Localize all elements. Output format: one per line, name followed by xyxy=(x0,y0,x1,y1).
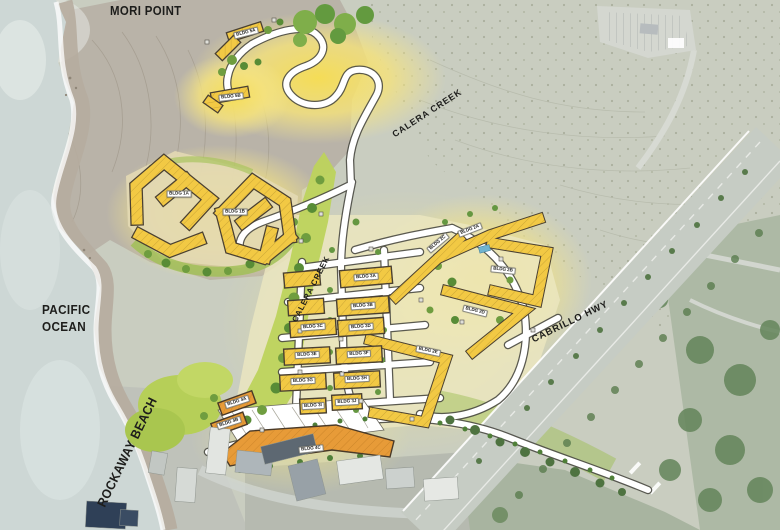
site-plan-canvas xyxy=(0,0,780,530)
bldg-label-3i: BLDG 3I xyxy=(301,402,324,410)
label-ocean: OCEAN xyxy=(42,318,90,335)
bldg-label-3h: BLDG 3H xyxy=(344,375,369,383)
label-mori-point: MORI POINT xyxy=(110,3,182,18)
bldg-label-3e: BLDG 3E xyxy=(295,351,320,359)
bldg-label-1a: BLDG 1A xyxy=(167,191,192,198)
bldg-label-3f: BLDG 3F xyxy=(347,350,372,358)
bldg-label-3j: BLDG 3J xyxy=(335,398,359,406)
bldg-label-3g: BLDG 3G xyxy=(290,377,315,385)
label-pacific-ocean: PACIFIC OCEAN xyxy=(42,301,90,335)
site-plan-screenshot: MORI POINT PACIFIC OCEAN ROCKAWAY BEACH … xyxy=(0,0,780,530)
bldg-label-1b: BLDG 1B xyxy=(223,209,248,216)
label-pacific: PACIFIC xyxy=(42,301,90,318)
